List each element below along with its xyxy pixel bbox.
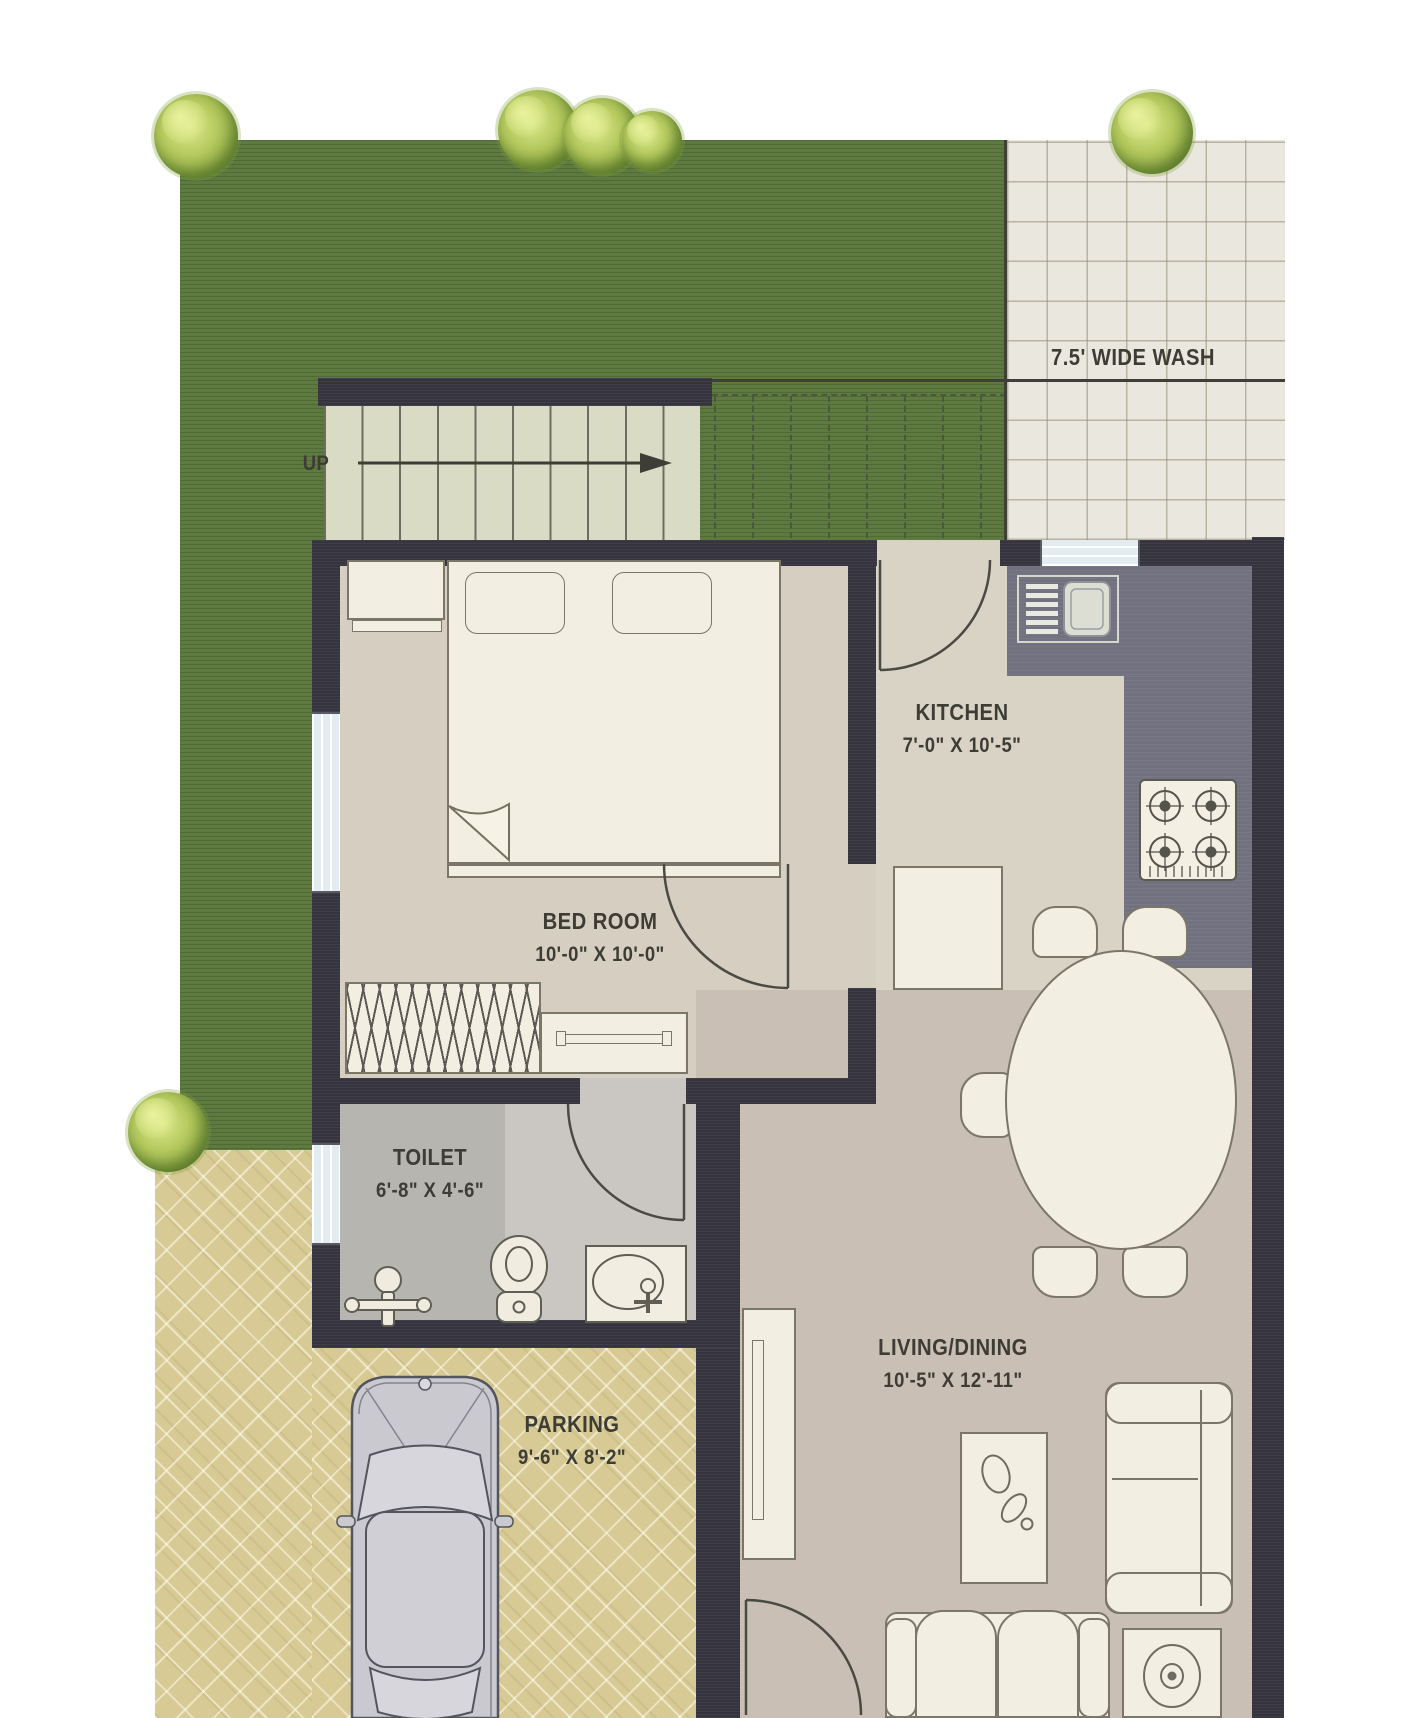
stair-wall bbox=[318, 378, 712, 406]
side-table bbox=[1122, 1628, 1222, 1718]
wash-area bbox=[1007, 140, 1285, 540]
room-dims: 9'-6" X 8'-2" bbox=[440, 1441, 704, 1474]
sofa-armrest bbox=[1078, 1618, 1110, 1718]
room-dims: 10'-0" X 10'-0" bbox=[468, 938, 732, 971]
dining-chair bbox=[1032, 906, 1098, 958]
dining-table bbox=[1005, 950, 1237, 1250]
kitchen-counter-top bbox=[1007, 566, 1252, 676]
tv bbox=[752, 1340, 764, 1520]
bedroom-window bbox=[312, 712, 340, 893]
room-name: BED ROOM bbox=[468, 905, 732, 938]
room-dims: 10'-5" X 12'-11" bbox=[821, 1364, 1085, 1397]
sofa-armrest bbox=[1105, 1382, 1233, 1424]
up-label: UP bbox=[290, 447, 343, 480]
parking-label: PARKING 9'-6" X 8'-2" bbox=[440, 1408, 704, 1474]
dining-chair bbox=[1032, 1246, 1098, 1298]
wall bbox=[696, 1078, 740, 1718]
pillow bbox=[612, 572, 712, 634]
bedroom-label: BED ROOM 10'-0" X 10'-0" bbox=[468, 905, 732, 971]
wall bbox=[1252, 537, 1284, 1718]
sofa-armrest bbox=[885, 1618, 917, 1718]
wash-label: 7.5' WIDE WASH bbox=[1001, 341, 1265, 374]
coffee-table bbox=[960, 1432, 1048, 1584]
tv-unit bbox=[742, 1308, 796, 1560]
sofa-armrest bbox=[1105, 1572, 1233, 1614]
sofa-cushion bbox=[997, 1610, 1079, 1718]
floor-plan: 7.5' WIDE WASH UP KITCHEN 7'-0" X 10'-5"… bbox=[0, 0, 1417, 1718]
bedside-drawer bbox=[352, 620, 442, 632]
wall bbox=[848, 988, 876, 1084]
parking-area bbox=[312, 1348, 712, 1718]
sofa-back-line bbox=[1200, 1390, 1202, 1606]
tree-icon bbox=[154, 94, 238, 178]
tree-icon bbox=[622, 111, 682, 171]
toilet-label: TOILET 6'-8" X 4'-6" bbox=[298, 1141, 562, 1207]
sofa-cushion-line bbox=[1112, 1478, 1198, 1480]
dining-chair bbox=[1122, 1246, 1188, 1298]
room-name: TOILET bbox=[298, 1141, 562, 1174]
dresser-handle bbox=[562, 1034, 666, 1044]
paved-side-strip bbox=[155, 1150, 312, 1718]
wash-edge-line bbox=[1004, 140, 1007, 540]
pillow bbox=[465, 572, 565, 634]
room-name: KITCHEN bbox=[830, 696, 1094, 729]
room-name: LIVING/DINING bbox=[821, 1331, 1085, 1364]
tree-icon bbox=[1111, 92, 1193, 174]
kitchen-label: KITCHEN 7'-0" X 10'-5" bbox=[830, 696, 1094, 762]
kitchen-window bbox=[1040, 540, 1140, 566]
room-dims: 6'-8" X 4'-6" bbox=[298, 1174, 562, 1207]
lawn-left-strip bbox=[180, 540, 312, 1150]
wall bbox=[1000, 540, 1040, 566]
room-dims: 7'-0" X 10'-5" bbox=[830, 729, 1094, 762]
bed-footboard bbox=[447, 864, 781, 878]
compound-line bbox=[712, 379, 1285, 382]
wall bbox=[312, 1078, 580, 1104]
room-name: PARKING bbox=[440, 1408, 704, 1441]
stair-dashed-edge bbox=[712, 394, 1006, 396]
kitchen-table bbox=[893, 866, 1003, 990]
wardrobe bbox=[345, 982, 541, 1074]
living-label: LIVING/DINING 10'-5" X 12'-11" bbox=[821, 1331, 1085, 1397]
staircase bbox=[324, 406, 700, 540]
wall bbox=[312, 540, 340, 712]
wall bbox=[312, 893, 340, 1143]
bedside-table bbox=[347, 560, 445, 620]
sofa-cushion bbox=[915, 1610, 997, 1718]
wall bbox=[312, 1320, 740, 1348]
toilet-shower-zone bbox=[340, 1104, 505, 1320]
tree-icon bbox=[128, 1092, 208, 1172]
